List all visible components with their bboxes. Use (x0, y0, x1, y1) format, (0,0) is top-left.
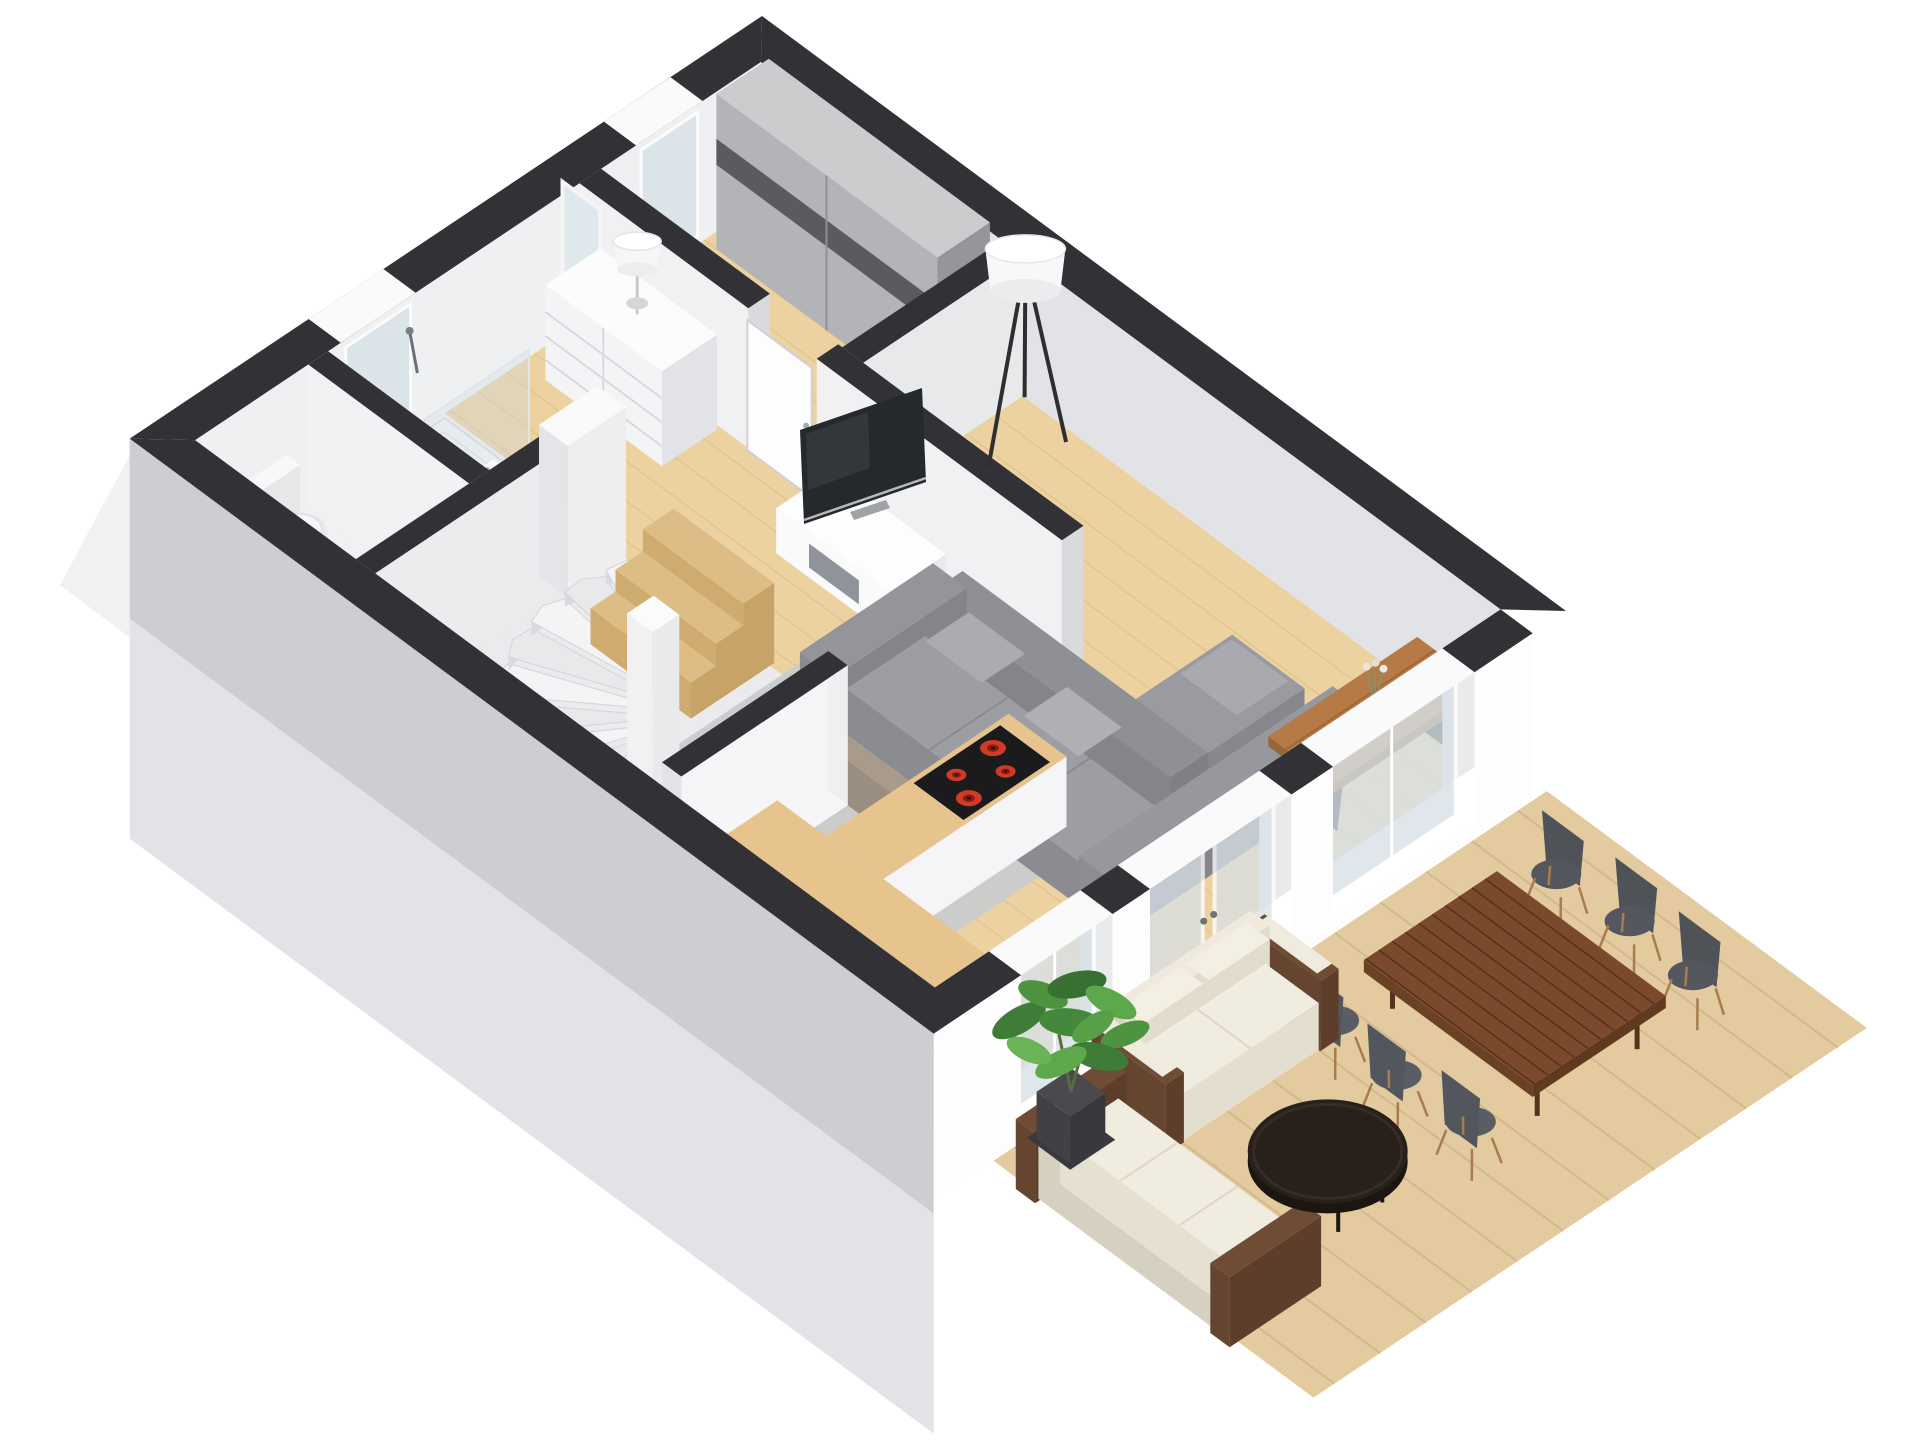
floorplan-scene (0, 0, 1920, 1440)
floorplan-3d-render (0, 0, 1920, 1440)
